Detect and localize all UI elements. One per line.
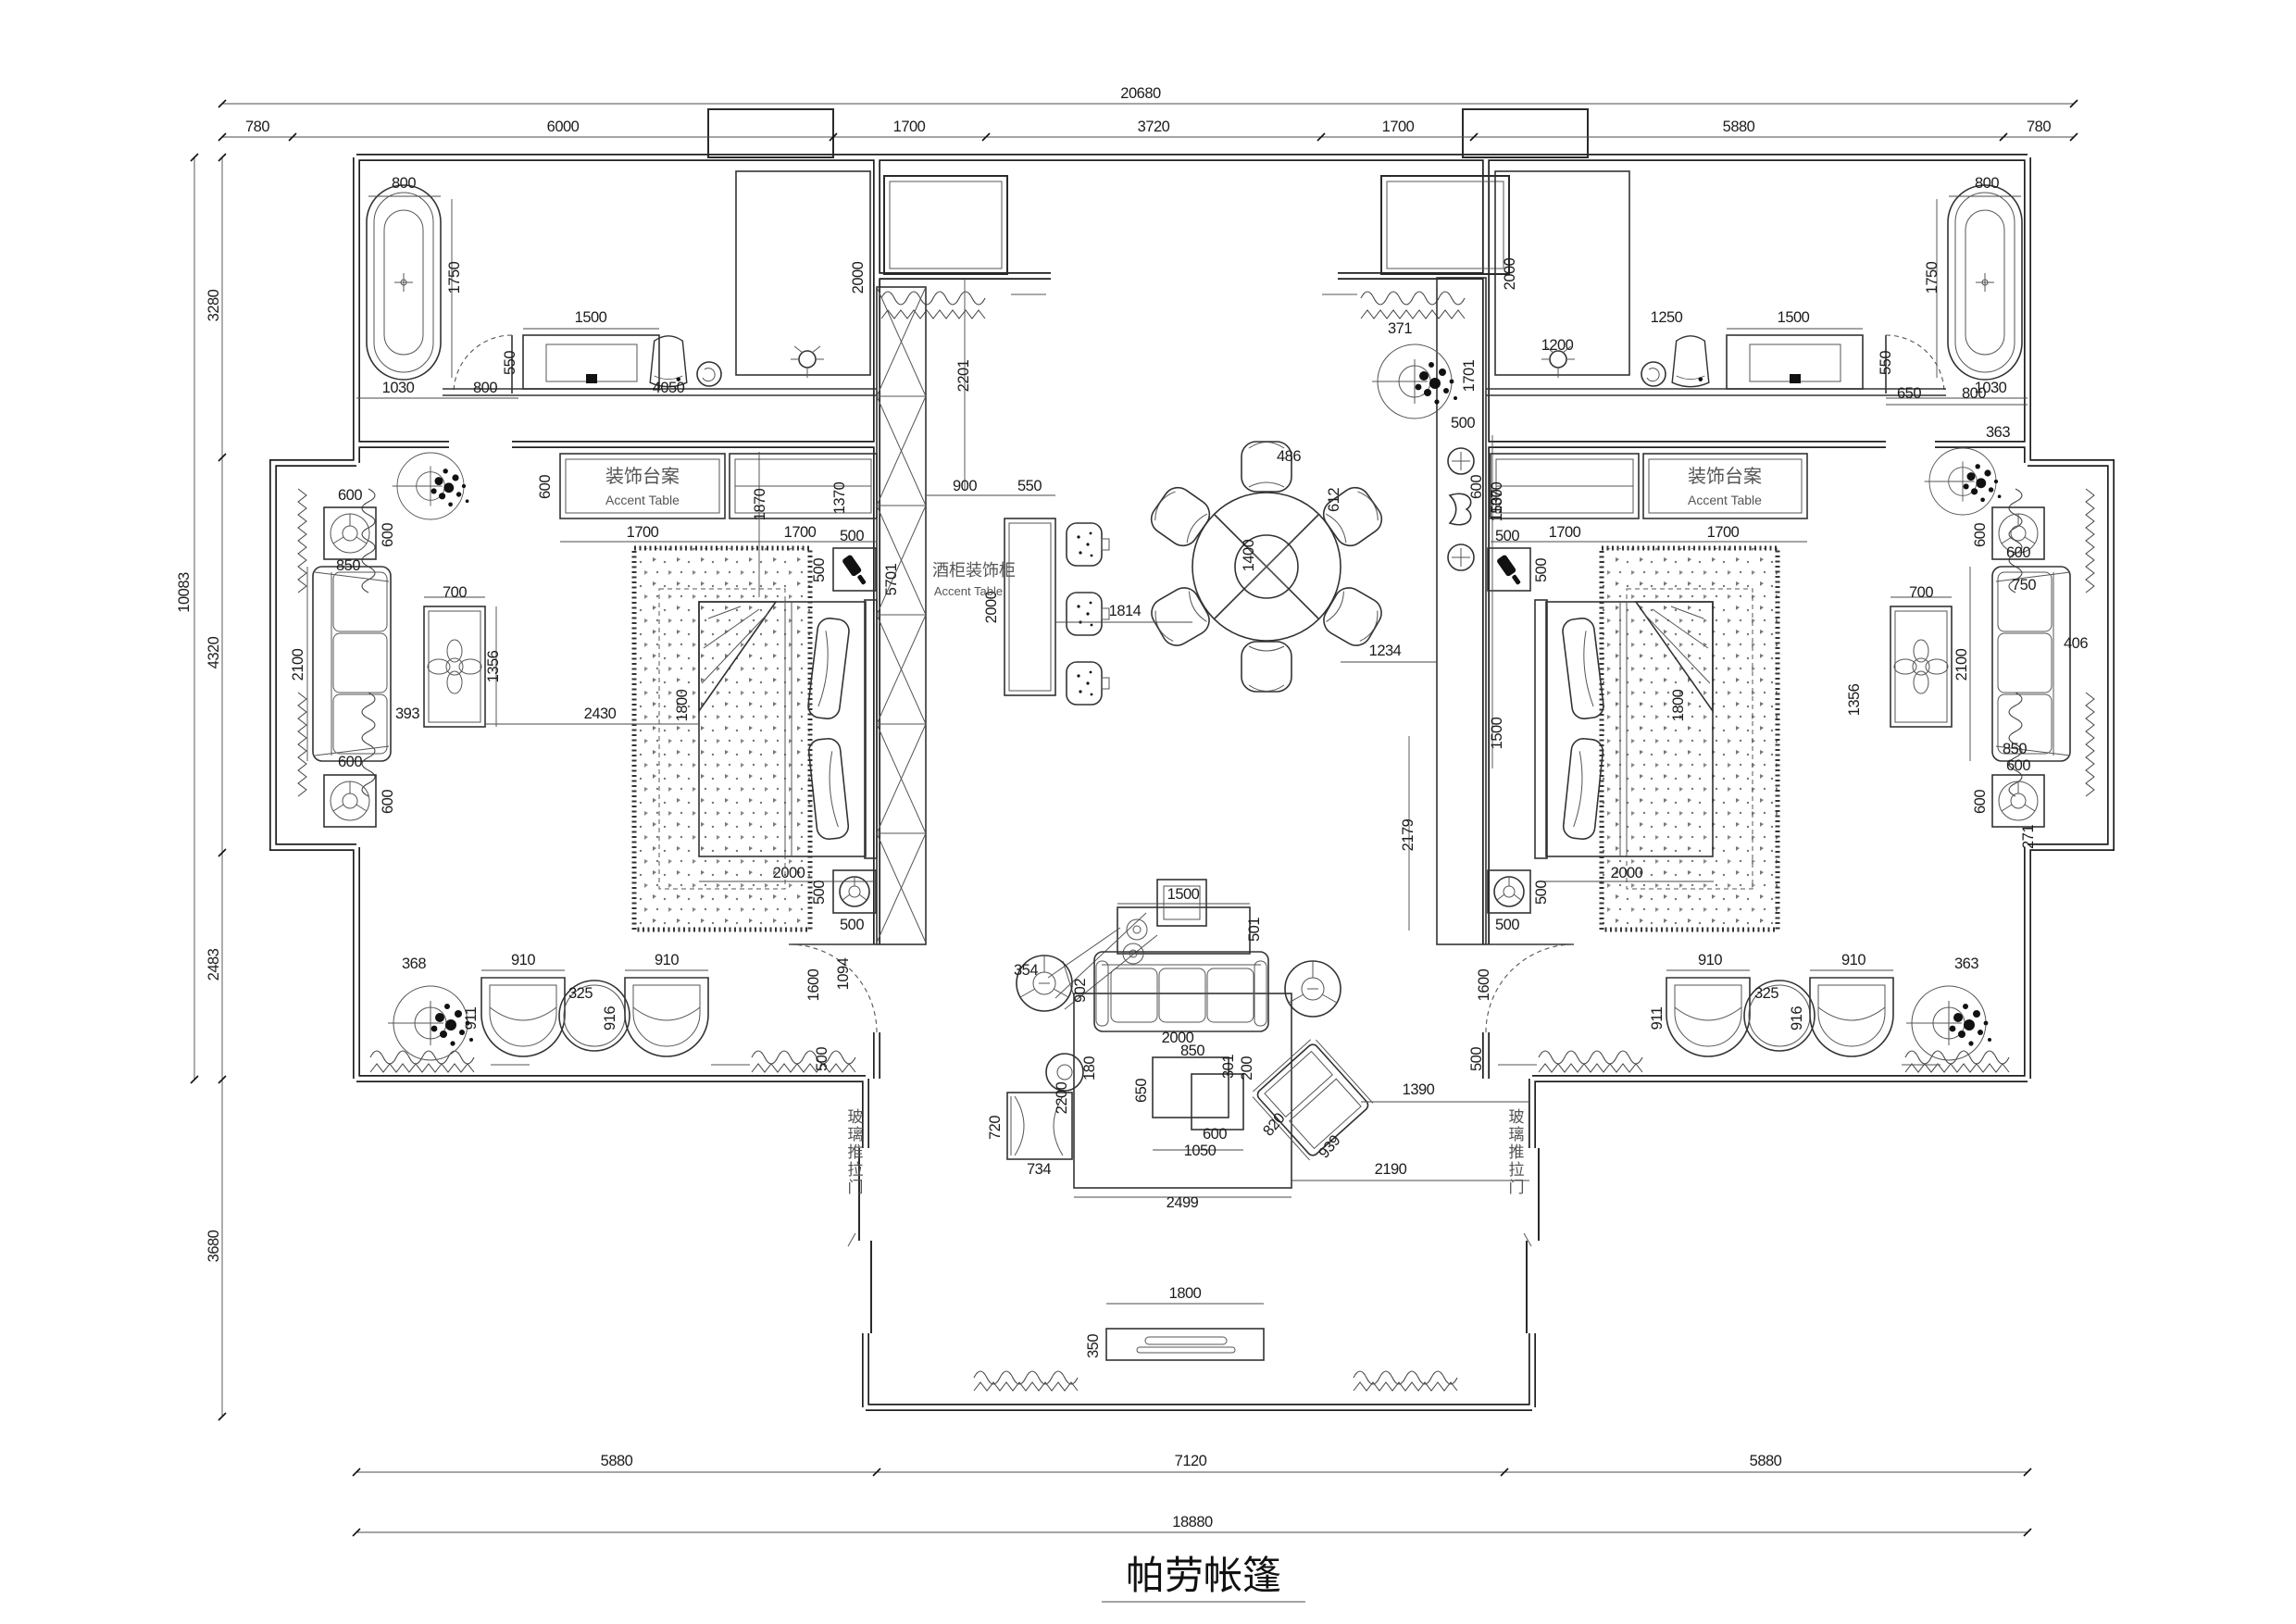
- dim-label: 325: [568, 985, 593, 1002]
- dim-label: 1500: [1778, 309, 1810, 326]
- dim-label: 500: [811, 881, 828, 905]
- dim-label: 500: [1533, 881, 1550, 905]
- furniture-label: 酒柜装饰柜: [932, 561, 1016, 580]
- dim-label: 363: [1986, 424, 2010, 441]
- dim-label: 1700: [1382, 119, 1415, 135]
- dim-label: 5880: [601, 1453, 633, 1469]
- dim-label: 800: [1975, 175, 1999, 192]
- tub-chair: [1666, 978, 1750, 1056]
- dim-label: 1750: [1924, 261, 1940, 294]
- dim-label: 1356: [1846, 683, 1863, 716]
- dim-label: 6000: [547, 119, 580, 135]
- dim-label: 500: [840, 528, 864, 544]
- bar-stool: [1067, 593, 1109, 635]
- dining-chair: [1242, 642, 1291, 692]
- dim-label: 271: [2020, 825, 2037, 849]
- dimension-labels: 2068078060001700372017005880780100833280…: [176, 85, 2088, 1530]
- dim-label: 600: [1468, 475, 1485, 499]
- dim-label: 1030: [382, 380, 415, 396]
- drawer-cabinet-right: [1491, 454, 1639, 518]
- dim-label: 780: [245, 119, 269, 135]
- curtains: [298, 292, 2094, 1391]
- dim-label: 2483: [206, 948, 222, 981]
- bathtub-right: [1948, 185, 2022, 380]
- side-lamp-inner: [1057, 1065, 1072, 1080]
- dim-label: 911: [463, 1006, 480, 1030]
- dim-label: 700: [1909, 584, 1933, 601]
- dim-label: 800: [392, 175, 416, 192]
- dim-label: 600: [2006, 544, 2030, 561]
- dim-label: 1200: [1541, 337, 1574, 354]
- dim-label: 301: [1220, 1055, 1237, 1079]
- dim-label: 1030: [1975, 380, 2007, 396]
- dim-label: 500: [1451, 415, 1475, 431]
- dim-label: 612: [1326, 488, 1342, 512]
- dim-label: 600: [1203, 1126, 1227, 1143]
- plant-left-seating: [388, 986, 473, 1060]
- bar-console: [1004, 518, 1055, 695]
- dim-label: 734: [1027, 1161, 1051, 1178]
- walls: [273, 109, 2111, 1407]
- dim-label: 600: [380, 523, 396, 547]
- vanity-left: [523, 335, 659, 389]
- plant-left-bath: [393, 453, 469, 519]
- dim-label: 700: [443, 584, 467, 601]
- dim-label: 2499: [1167, 1194, 1199, 1211]
- lamp-table-right-bottom: [1992, 775, 2044, 827]
- dim-label: 850: [336, 557, 360, 574]
- drawing-title: 帕劳帐篷: [1126, 1555, 1281, 1598]
- dim-label: 600: [2006, 757, 2030, 774]
- dim-label: 1500: [1489, 717, 1505, 749]
- dim-label: 939: [1316, 1132, 1344, 1162]
- door-swing-left-bedroom: [789, 944, 877, 1032]
- dim-label: 1700: [1707, 524, 1740, 541]
- dim-label: 820: [1260, 1110, 1289, 1140]
- furniture-label: 装饰台案: [1688, 466, 1762, 487]
- dim-label: 2100: [1953, 648, 1970, 681]
- entry-closet-left-inner: [890, 181, 1002, 269]
- dim-label: 1390: [1403, 1081, 1435, 1098]
- dim-label: 500: [814, 1047, 830, 1071]
- furniture-label: 装饰台案: [605, 466, 680, 487]
- dim-label: 2000: [1502, 257, 1518, 290]
- bathtub-left: [367, 185, 441, 380]
- dim-label: 900: [953, 478, 977, 494]
- dim-label: 550: [502, 351, 518, 375]
- dim-label: 4320: [206, 636, 222, 668]
- dim-label: 1800: [674, 689, 691, 721]
- dim-label: 910: [1841, 952, 1865, 968]
- bay-right: [1890, 507, 2070, 827]
- dim-label: 10083: [176, 572, 193, 613]
- dim-label: 20680: [1120, 85, 1161, 102]
- dim-label: 500: [1533, 558, 1550, 582]
- furniture-label: Accent Table: [1688, 493, 1762, 507]
- dim-label: 406: [2064, 635, 2088, 652]
- nightstand-item-icon: [842, 554, 869, 587]
- dim-label: 1356: [485, 650, 502, 682]
- dim-label: 325: [1754, 985, 1778, 1002]
- dim-label: 916: [602, 1006, 618, 1031]
- dim-label: 501: [1246, 918, 1263, 942]
- vanity-right: [1727, 335, 1863, 389]
- dim-label: 1234: [1369, 643, 1402, 659]
- sofa-right-bay: [1992, 567, 2070, 761]
- dim-label: 1050: [1184, 1143, 1217, 1159]
- dim-label: 2000: [850, 261, 867, 294]
- seating-left: [388, 978, 708, 1060]
- coffee-table-right: [1890, 606, 1952, 727]
- dim-label: 1800: [1670, 689, 1687, 721]
- dim-label: 500: [1468, 1047, 1485, 1071]
- dim-label: 800: [473, 380, 497, 396]
- furniture-label: Accent Table: [934, 584, 1003, 598]
- dining-chair: [1146, 582, 1215, 651]
- dim-label: 911: [1649, 1006, 1666, 1030]
- dim-label: 780: [2027, 119, 2051, 135]
- hamper-right: [1672, 336, 1709, 387]
- dim-label: 1701: [1461, 359, 1478, 392]
- dim-label: 1600: [805, 968, 822, 1001]
- dim-label: 2190: [1375, 1161, 1407, 1178]
- sliding-door-arrows: [848, 1233, 1531, 1246]
- dim-label: 850: [2003, 741, 2027, 757]
- dim-label: 393: [395, 706, 419, 722]
- dim-label: 3680: [206, 1230, 222, 1262]
- dim-label: 2000: [773, 865, 805, 881]
- dim-label: 2179: [1400, 818, 1416, 851]
- dim-label: 1700: [784, 524, 817, 541]
- dim-label: 600: [1972, 790, 1989, 814]
- wine-cabinet-left: [877, 287, 926, 944]
- furniture-label: 玻璃推拉门: [1509, 1108, 1525, 1196]
- dim-label: 650: [1133, 1079, 1150, 1103]
- dim-label: 1700: [893, 119, 926, 135]
- shower-head-left: [791, 346, 824, 378]
- dim-label: 350: [1085, 1334, 1102, 1358]
- wall-pier-left: [708, 109, 833, 157]
- coffee-table-left: [424, 606, 485, 727]
- dim-label: 500: [1495, 917, 1519, 933]
- bar-stool: [1067, 662, 1109, 705]
- dim-label: 5880: [1723, 119, 1755, 135]
- dim-label: 650: [1897, 385, 1921, 402]
- dim-label: 1094: [835, 957, 852, 990]
- dim-label: 1814: [1109, 603, 1142, 619]
- bar-stool: [1067, 523, 1109, 566]
- round-fixture-right: [1641, 362, 1666, 386]
- floor-lamp-right: [1285, 961, 1341, 1017]
- dim-label: 850: [1180, 1043, 1204, 1059]
- dim-label: 1250: [1651, 309, 1683, 326]
- dim-label: 500: [811, 558, 828, 582]
- dim-label: 910: [1698, 952, 1722, 968]
- plant-right-bath: [1925, 448, 2002, 515]
- tub-chair: [1810, 978, 1893, 1056]
- dim-label: 354: [1014, 962, 1038, 979]
- dim-label: 750: [2012, 577, 2036, 593]
- dim-label: 902: [1072, 979, 1089, 1003]
- dim-label: 2201: [955, 359, 972, 392]
- armchair-rotated: [1250, 1037, 1373, 1160]
- dim-label: 1400: [1241, 539, 1257, 571]
- tub-chair: [481, 978, 565, 1056]
- dim-label: 3280: [206, 289, 222, 321]
- dim-label: 363: [1954, 956, 1978, 972]
- dim-label: 600: [380, 790, 396, 814]
- dim-label: 600: [1972, 523, 1989, 547]
- dim-label: 1500: [575, 309, 607, 326]
- dim-label: 720: [987, 1116, 1004, 1140]
- dim-label: 1700: [627, 524, 659, 541]
- dim-label: 1800: [1169, 1285, 1202, 1302]
- drawing-sheet: 2068078060001700372017005880780100833280…: [0, 0, 2296, 1624]
- dim-label: 1500: [1167, 886, 1200, 903]
- dim-label: 1370: [1489, 481, 1505, 514]
- dining-chair: [1318, 582, 1387, 651]
- dim-label: 500: [1495, 528, 1519, 544]
- counter-right: [1486, 389, 1946, 395]
- plant-right-seating: [1906, 986, 1991, 1060]
- dim-label: 600: [338, 754, 362, 770]
- dim-label: 550: [1017, 478, 1042, 494]
- wall-pier-right: [1463, 109, 1588, 157]
- dim-label: 4050: [653, 380, 685, 396]
- dim-label: 500: [840, 917, 864, 933]
- dining-table: [1192, 493, 1341, 641]
- lamp-table-left-bottom: [324, 775, 376, 827]
- nightstand-item-icon: [1496, 554, 1524, 587]
- dining-chair: [1145, 481, 1215, 551]
- bay-left: [313, 507, 485, 827]
- dim-label: 2430: [584, 706, 617, 722]
- dim-label: 600: [537, 475, 554, 499]
- dim-label: 600: [338, 487, 362, 504]
- dim-label: 1370: [831, 481, 848, 514]
- table-lamp-icon: [1494, 877, 1524, 906]
- furniture-label: Accent Table: [605, 493, 680, 507]
- furniture-label: 玻璃推拉门: [848, 1108, 864, 1196]
- plant-dining: [1372, 344, 1457, 418]
- seating-right: [1666, 978, 1991, 1060]
- entry-closet-left: [884, 176, 1007, 274]
- dim-label: 910: [655, 952, 679, 968]
- dim-label: 1700: [1549, 524, 1581, 541]
- dim-label: 7120: [1175, 1453, 1207, 1469]
- sofa-living: [1094, 952, 1268, 1031]
- dim-label: 18880: [1172, 1514, 1213, 1530]
- door-swing-right-bedroom: [1486, 944, 1574, 1032]
- dim-label: 916: [1789, 1006, 1805, 1031]
- dim-label: 371: [1388, 320, 1412, 337]
- round-fixture-left: [697, 362, 721, 386]
- dim-label: 2200: [1054, 1081, 1070, 1114]
- dim-label: 5880: [1750, 1453, 1782, 1469]
- dim-label: 1870: [752, 488, 768, 520]
- dim-label: 180: [1081, 1056, 1098, 1081]
- dim-label: 486: [1277, 448, 1301, 465]
- dim-label: 2000: [1611, 865, 1643, 881]
- tv-console: [1106, 1329, 1264, 1360]
- dim-label: 200: [1239, 1056, 1255, 1081]
- dim-label: 1600: [1476, 968, 1492, 1001]
- dim-label: 910: [511, 952, 535, 968]
- sofa-left-bay: [313, 567, 391, 761]
- tub-chair: [625, 978, 708, 1056]
- dim-label: 368: [402, 956, 426, 972]
- dim-label: 2100: [290, 648, 306, 681]
- entry-closet-right: [1381, 176, 1509, 274]
- dim-label: 550: [1878, 351, 1894, 375]
- dim-label: 1750: [446, 261, 463, 294]
- dim-label: 5701: [883, 563, 900, 595]
- floor-plan-svg: 2068078060001700372017005880780100833280…: [0, 0, 2296, 1624]
- dim-label: 3720: [1138, 119, 1170, 135]
